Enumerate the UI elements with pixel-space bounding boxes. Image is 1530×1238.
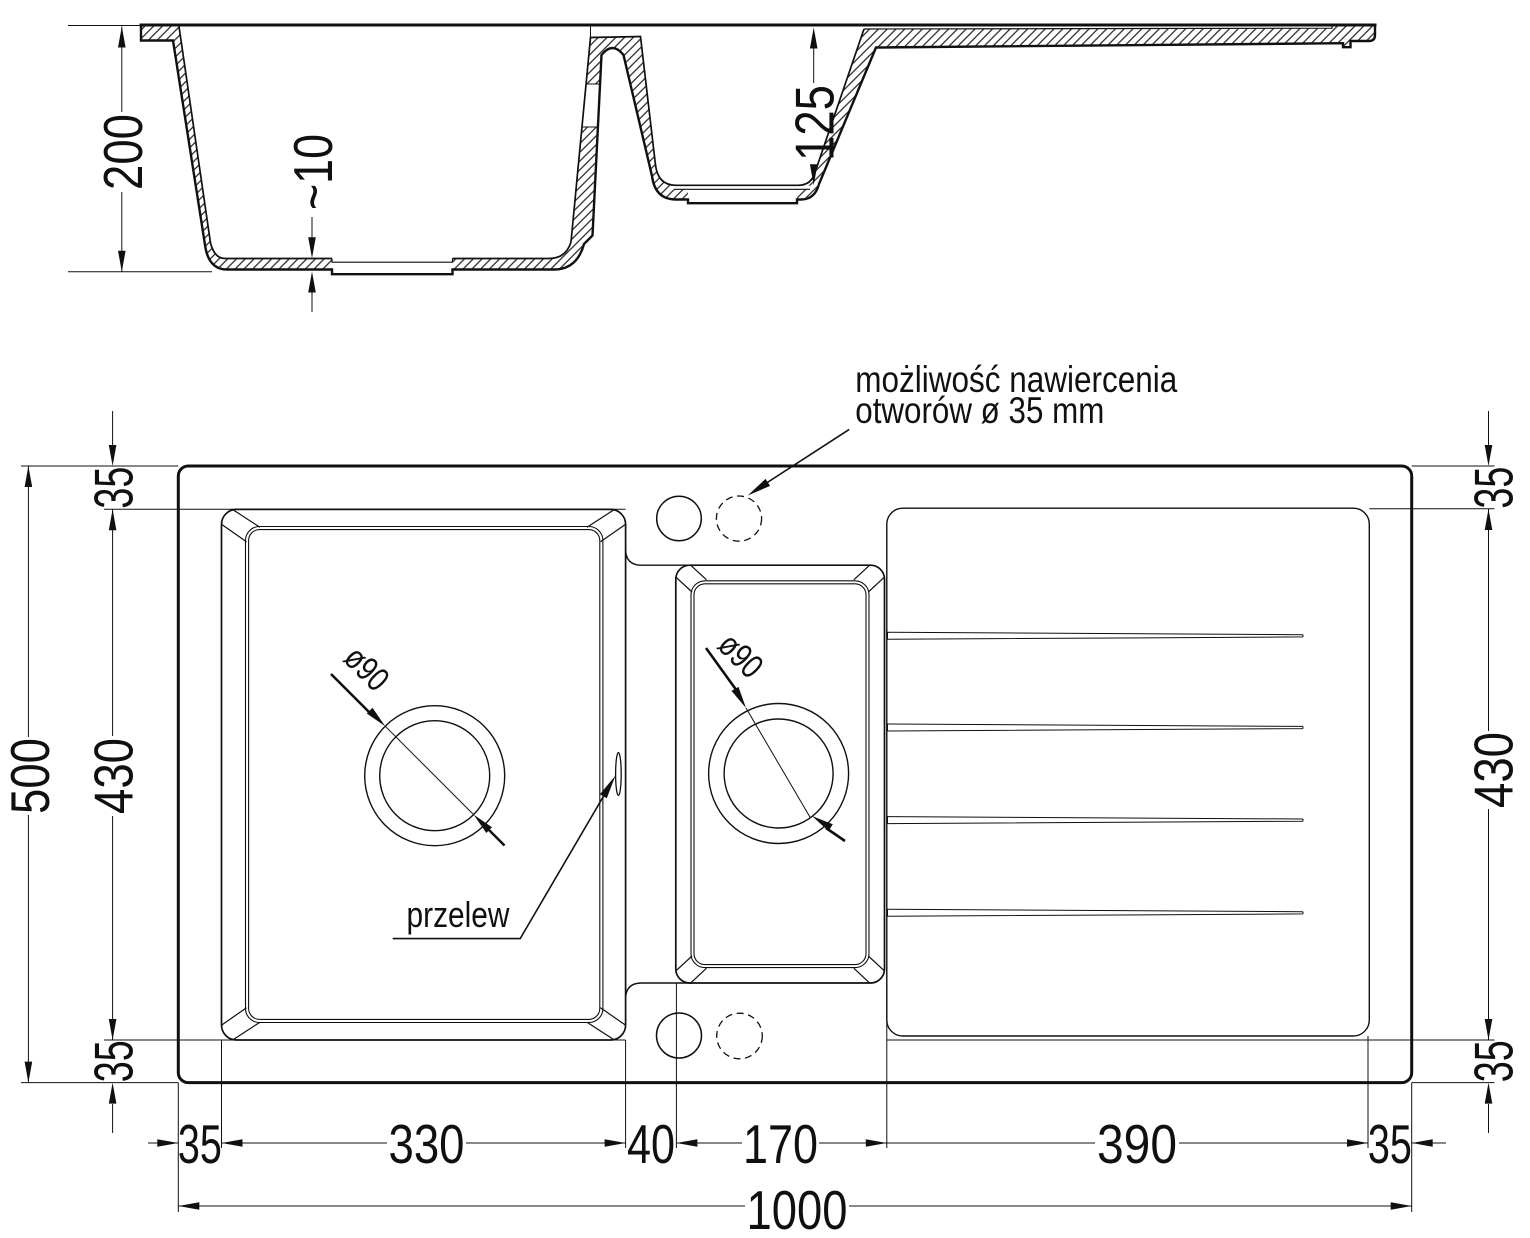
svg-text:330: 330	[389, 1113, 465, 1175]
svg-text:125: 125	[784, 85, 846, 161]
svg-text:35: 35	[83, 467, 145, 509]
svg-text:40: 40	[627, 1113, 675, 1175]
svg-text:35: 35	[1463, 467, 1525, 509]
svg-text:500: 500	[0, 738, 61, 814]
svg-text:1000: 1000	[747, 1179, 848, 1238]
svg-text:~10: ~10	[282, 134, 344, 210]
svg-text:35: 35	[178, 1113, 222, 1175]
svg-text:200: 200	[92, 114, 154, 190]
svg-text:430: 430	[1463, 732, 1525, 808]
svg-text:170: 170	[743, 1113, 818, 1175]
svg-text:35: 35	[1463, 1040, 1525, 1082]
svg-text:przelew: przelew	[407, 894, 511, 935]
svg-text:35: 35	[1368, 1113, 1412, 1175]
svg-text:35: 35	[83, 1040, 145, 1082]
svg-text:otworów ø 35 mm: otworów ø 35 mm	[855, 390, 1104, 431]
svg-text:430: 430	[83, 738, 145, 814]
svg-text:390: 390	[1097, 1113, 1177, 1175]
